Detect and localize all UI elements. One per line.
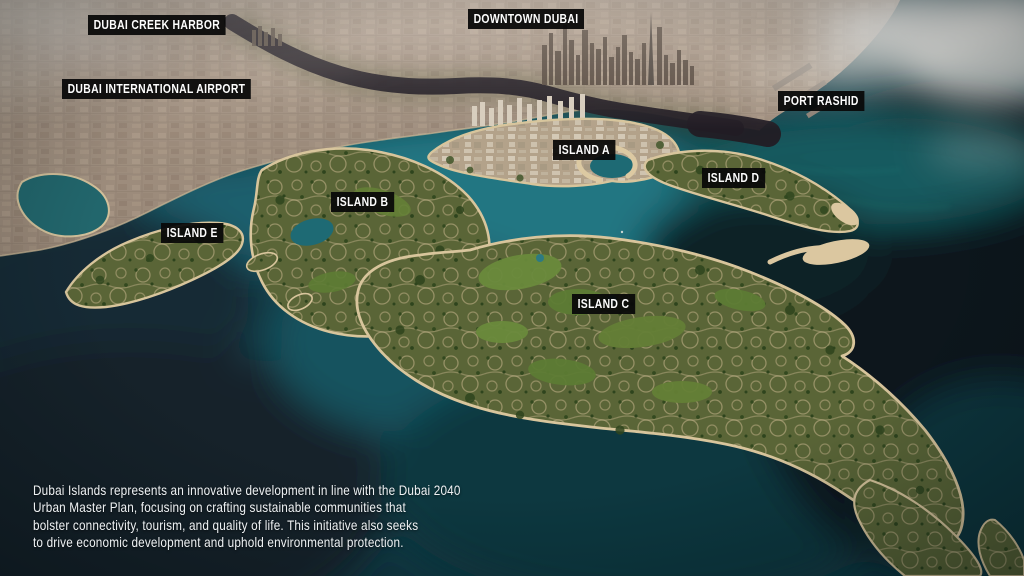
- description-line: bolster connectivity, tourism, and quali…: [33, 517, 461, 534]
- label-dubai-international-airport: DUBAI INTERNATIONAL AIRPORT: [62, 79, 251, 99]
- dubai-islands-map: DUBAI CREEK HARBOR DOWNTOWN DUBAI DUBAI …: [0, 0, 1024, 576]
- label-island-d: ISLAND D: [702, 168, 765, 188]
- label-island-c: ISLAND C: [572, 294, 635, 314]
- project-description: Dubai Islands represents an innovative d…: [33, 482, 461, 552]
- description-line: Dubai Islands represents an innovative d…: [33, 482, 461, 499]
- label-island-a: ISLAND A: [553, 140, 615, 160]
- description-line: Urban Master Plan, focusing on crafting …: [33, 499, 461, 516]
- label-island-b: ISLAND B: [331, 192, 394, 212]
- description-line: to drive economic development and uphold…: [33, 534, 461, 551]
- label-dubai-creek-harbor: DUBAI CREEK HARBOR: [88, 15, 226, 35]
- label-island-e: ISLAND E: [161, 223, 223, 243]
- label-port-rashid: PORT RASHID: [778, 91, 864, 111]
- label-downtown-dubai: DOWNTOWN DUBAI: [468, 9, 584, 29]
